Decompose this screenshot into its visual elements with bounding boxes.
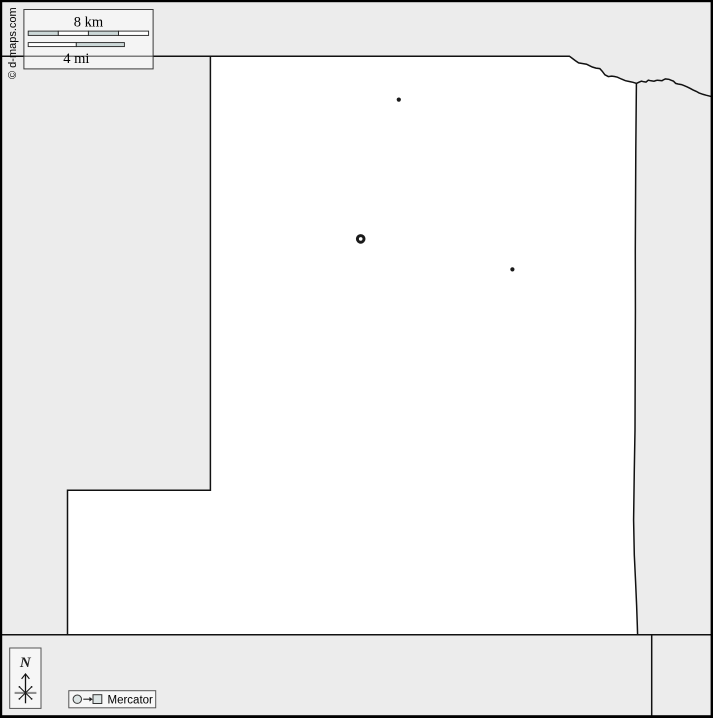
svg-text:N: N bbox=[19, 655, 32, 671]
svg-text:4 mi: 4 mi bbox=[63, 51, 89, 67]
svg-text:© d-maps.com: © d-maps.com bbox=[7, 7, 19, 79]
svg-text:8 km: 8 km bbox=[74, 15, 104, 31]
svg-text:Mercator: Mercator bbox=[108, 694, 154, 706]
